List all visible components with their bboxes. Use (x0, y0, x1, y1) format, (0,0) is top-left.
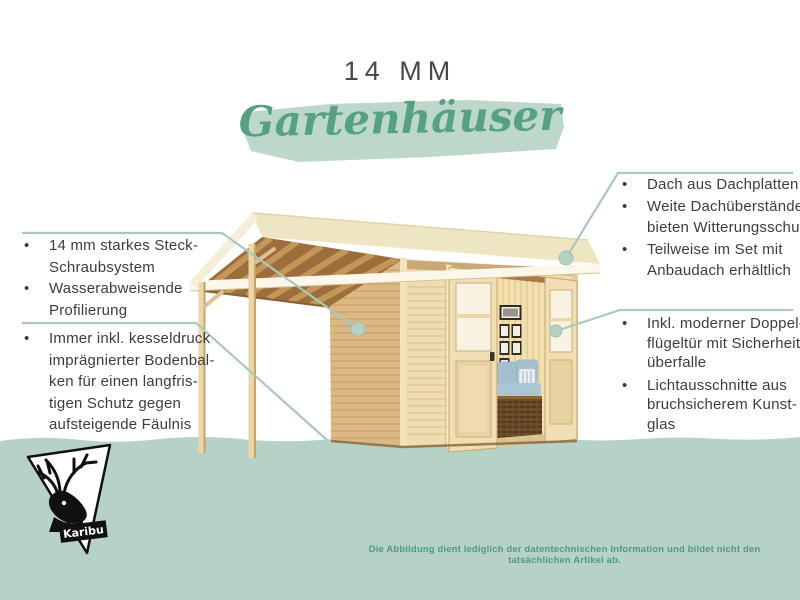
bullet-icon: • (622, 314, 647, 334)
feature-line: Lichtausschnitte aus (647, 376, 797, 396)
product-infographic: Karibu 14 MM Gartenhäuser • 14 mm starke… (0, 0, 800, 600)
feature-group-door: • Inkl. moderner Doppel- flügeltür mit S… (622, 314, 800, 434)
feature-line: überfalle (647, 353, 800, 373)
feature-line: bieten Witterungsschutz (647, 217, 800, 239)
bullet-icon: • (24, 235, 49, 257)
bullet-icon: • (622, 376, 647, 396)
page-title: 14 MM (0, 56, 800, 87)
bullet-icon: • (622, 174, 647, 196)
callout-dot-roof (559, 251, 573, 265)
callout-dot-door (550, 325, 562, 337)
ground-band (0, 437, 800, 600)
disclaimer-text: Die Abbildung dient lediglich der datent… (337, 544, 792, 566)
right-door (545, 277, 577, 443)
bullet-icon: • (24, 278, 49, 300)
feature-group-wall-system: • 14 mm starkes Steck- Schraubsystem • W… (24, 235, 234, 321)
feature-line: Weite Dachüberstände (647, 196, 800, 218)
feature-line: glas (647, 415, 797, 435)
feature-line: Teilweise im Set mit (647, 239, 791, 261)
feature-item: • Dach aus Dachplatten (622, 174, 800, 196)
feature-line: Dach aus Dachplatten (647, 174, 799, 196)
feature-item: • Inkl. moderner Doppel- flügeltür mit S… (622, 314, 800, 373)
feature-line: ken für einen langfris- (49, 371, 215, 393)
callout-dot-wall (351, 322, 365, 336)
feature-line: flügeltür mit Sicherheits- (647, 334, 800, 354)
bullet-icon: • (24, 328, 49, 350)
feature-item: • 14 mm starkes Steck- Schraubsystem (24, 235, 234, 278)
feature-item: • Wasserabweisende Profilierung (24, 278, 234, 321)
door-opening-interior (496, 270, 545, 448)
feature-line: tigen Schutz gegen (49, 393, 215, 415)
left-door (449, 267, 497, 452)
corner-trim (400, 257, 407, 447)
feature-item: • Teilweise im Set mit Anbaudach erhältl… (622, 239, 800, 282)
feature-line: Schraubsystem (49, 257, 198, 279)
bullet-icon: • (622, 196, 647, 218)
door-handle (490, 352, 495, 361)
feature-line: Immer inkl. kesseldruck (49, 328, 215, 350)
feature-group-roof: • Dach aus Dachplatten • Weite Dachübers… (622, 174, 800, 282)
feature-item: • Weite Dachüberstände bieten Witterungs… (622, 196, 800, 239)
sofa (497, 360, 541, 399)
feature-line: 14 mm starkes Steck- (49, 235, 198, 257)
feature-line: Anbaudach erhältlich (647, 260, 791, 282)
feature-item: • Lichtausschnitte aus bruchsicherem Kun… (622, 376, 800, 435)
feature-line: imprägnierter Bodenbal- (49, 350, 215, 372)
feature-line: Profilierung (49, 300, 183, 322)
garden-house (190, 213, 600, 458)
feature-item: • Immer inkl. kesseldruck imprägnierter … (24, 328, 234, 436)
feature-line: Wasserabweisende (49, 278, 183, 300)
feature-line: Inkl. moderner Doppel- (647, 314, 800, 334)
feature-line: aufsteigende Fäulnis (49, 414, 215, 436)
bullet-icon: • (622, 239, 647, 261)
feature-line: bruchsicherem Kunst- (647, 395, 797, 415)
feature-group-floor-beams: • Immer inkl. kesseldruck imprägnierter … (24, 328, 234, 436)
